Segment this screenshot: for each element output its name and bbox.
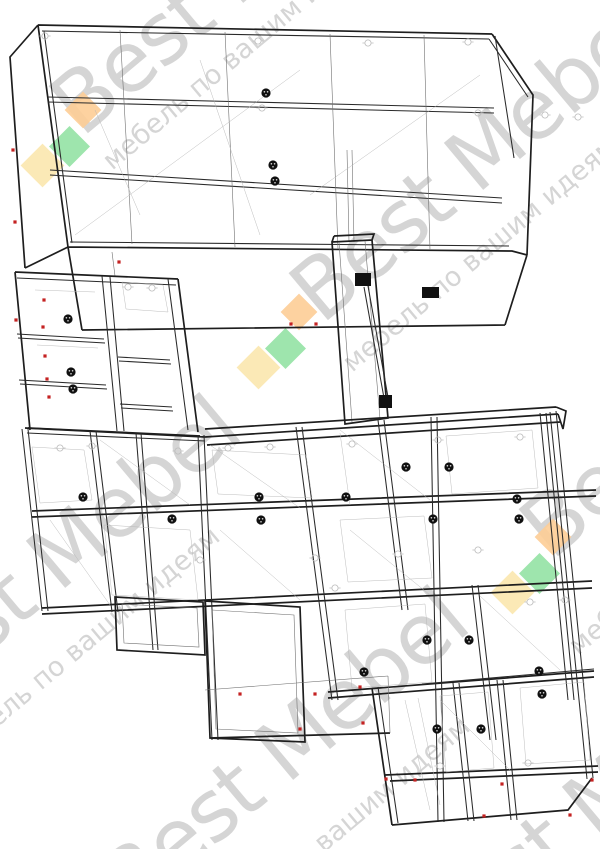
- knob: [63, 314, 72, 323]
- red-assembly-mark: [117, 260, 120, 263]
- knob: [359, 667, 368, 676]
- red-assembly-mark: [289, 322, 292, 325]
- knob: [432, 724, 441, 733]
- assembly-line-drawing: [0, 0, 600, 849]
- red-assembly-mark: [384, 777, 387, 780]
- cam-lock-icon: [122, 284, 133, 290]
- red-assembly-mark: [298, 727, 301, 730]
- cam-lock-icon: [514, 434, 525, 440]
- cam-lock-icon: [462, 39, 473, 45]
- cam-lock-icon: [434, 763, 445, 769]
- red-assembly-mark: [13, 220, 16, 223]
- shelving-grid: [22, 407, 596, 822]
- cam-lock-icon: [329, 585, 340, 591]
- red-assembly-mark: [11, 148, 14, 151]
- knob-layer: [63, 88, 546, 733]
- cam-lock-icon: [346, 441, 357, 447]
- cam-lock-icon: [256, 105, 267, 111]
- red-assembly-mark: [47, 395, 50, 398]
- cam-lock-icon: [54, 445, 65, 451]
- knob: [270, 176, 279, 185]
- red-assembly-mark: [42, 298, 45, 301]
- red-assembly-mark: [358, 685, 361, 688]
- red-assembly-mark: [361, 721, 364, 724]
- cam-lock-icon: [362, 40, 373, 46]
- red-assembly-mark: [14, 318, 17, 321]
- knob: [401, 462, 410, 471]
- bracket-fitting: [422, 287, 439, 298]
- hinge-fitting: [355, 273, 371, 286]
- red-assembly-mark: [45, 377, 48, 380]
- red-assembly-mark: [590, 778, 593, 781]
- knob: [167, 514, 176, 523]
- red-assembly-mark: [568, 813, 571, 816]
- red-assembly-mark: [313, 692, 316, 695]
- knob: [422, 635, 431, 644]
- cam-lock-icon: [539, 112, 550, 118]
- cam-lock-icon: [472, 547, 483, 553]
- cam-lock-icon: [172, 448, 183, 454]
- knob: [476, 724, 485, 733]
- cam-lock-icon: [222, 445, 233, 451]
- cam-lock-icon: [146, 285, 157, 291]
- red-assembly-mark: [500, 782, 503, 785]
- knob: [464, 635, 473, 644]
- knob: [428, 514, 437, 523]
- red-assembly-mark: [482, 814, 485, 817]
- knob: [78, 492, 87, 501]
- cam-lock-icon: [392, 551, 403, 557]
- red-assembly-mark: [413, 778, 416, 781]
- knob: [66, 367, 75, 376]
- knob: [534, 666, 543, 675]
- knob: [514, 514, 523, 523]
- cam-lock-icon: [252, 38, 263, 44]
- door-panel: [332, 234, 439, 424]
- upper-wardrobe: [10, 25, 533, 330]
- red-assembly-mark: [238, 692, 241, 695]
- knob: [537, 689, 546, 698]
- step-boxes: [115, 597, 390, 742]
- cam-lock-icon: [572, 114, 583, 120]
- knob: [341, 492, 350, 501]
- knob: [254, 492, 263, 501]
- knob: [512, 494, 521, 503]
- red-assembly-mark: [43, 354, 46, 357]
- knob: [68, 384, 77, 393]
- cam-lock-icon: [264, 444, 275, 450]
- cam-lock-icon: [522, 760, 533, 766]
- knob: [444, 462, 453, 471]
- red-assembly-mark: [314, 322, 317, 325]
- furniture-drawing-canvas: Best Mebel мебель по вашим идеям Best Me…: [0, 0, 600, 849]
- left-cabinet-stack: [15, 272, 200, 436]
- cam-lock-icon: [432, 437, 443, 443]
- rod-foot-fitting: [379, 395, 392, 408]
- red-assembly-mark: [41, 325, 44, 328]
- knob: [268, 160, 277, 169]
- knob: [261, 88, 270, 97]
- knob: [256, 515, 265, 524]
- cam-lock-icon: [524, 599, 535, 605]
